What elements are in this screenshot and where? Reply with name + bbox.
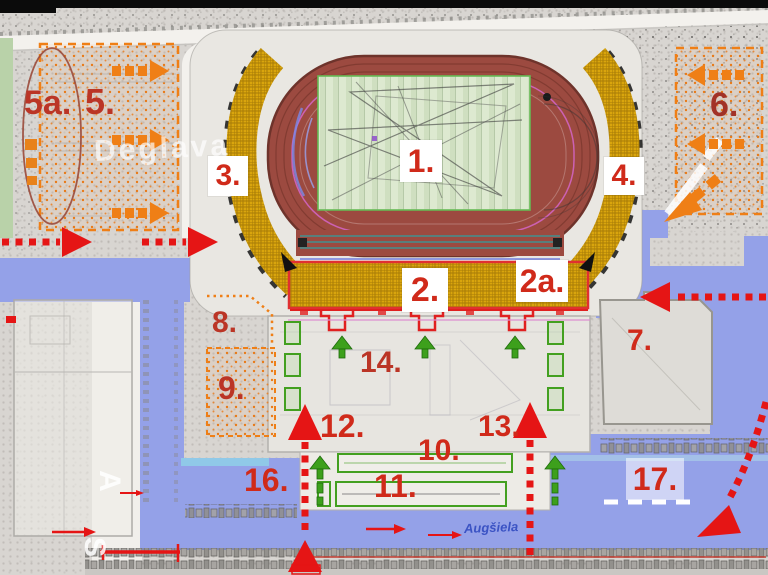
site-plan: 5a. 5. 3. 1. 4. 6. 2. 2a. 7. 8. 9. 10. 1…: [0, 0, 768, 575]
label-zone-6: 6.: [710, 88, 738, 122]
watermark-west-street-a: A: [94, 470, 124, 492]
label-zone-5a: 5a.: [24, 86, 71, 120]
watermark-deglava: Deglava: [93, 131, 230, 167]
label-zone-12: 12.: [320, 410, 364, 442]
label-zone-16: 16.: [244, 464, 288, 496]
label-zone-1: 1.: [400, 140, 442, 182]
label-zone-5: 5.: [85, 84, 115, 120]
label-zone-2a: 2a.: [516, 260, 568, 302]
label-zone-17: 17.: [626, 458, 684, 500]
building-7: [600, 292, 712, 424]
label-zone-1-text: 1.: [408, 145, 435, 177]
label-zone-2-text: 2.: [411, 273, 439, 307]
label-zone-2a-text: 2a.: [520, 265, 564, 297]
label-zone-9: 9.: [218, 372, 245, 404]
label-zone-10: 10.: [418, 436, 460, 466]
street-label-augsiela: Augšiela: [464, 520, 519, 535]
label-zone-11: 11.: [374, 470, 417, 502]
watermark-west-street-s: S: [79, 537, 109, 557]
label-zone-8: 8.: [212, 308, 237, 338]
label-zone-17-text: 17.: [633, 463, 677, 495]
label-zone-13: 13.: [478, 412, 520, 442]
label-zone-7: 7.: [627, 326, 652, 356]
label-zone-4-text: 4.: [611, 161, 636, 191]
label-zone-3-text: 3.: [215, 161, 240, 191]
label-zone-4: 4.: [604, 157, 644, 195]
label-zone-14: 14.: [360, 348, 402, 378]
label-zone-2: 2.: [402, 268, 448, 312]
